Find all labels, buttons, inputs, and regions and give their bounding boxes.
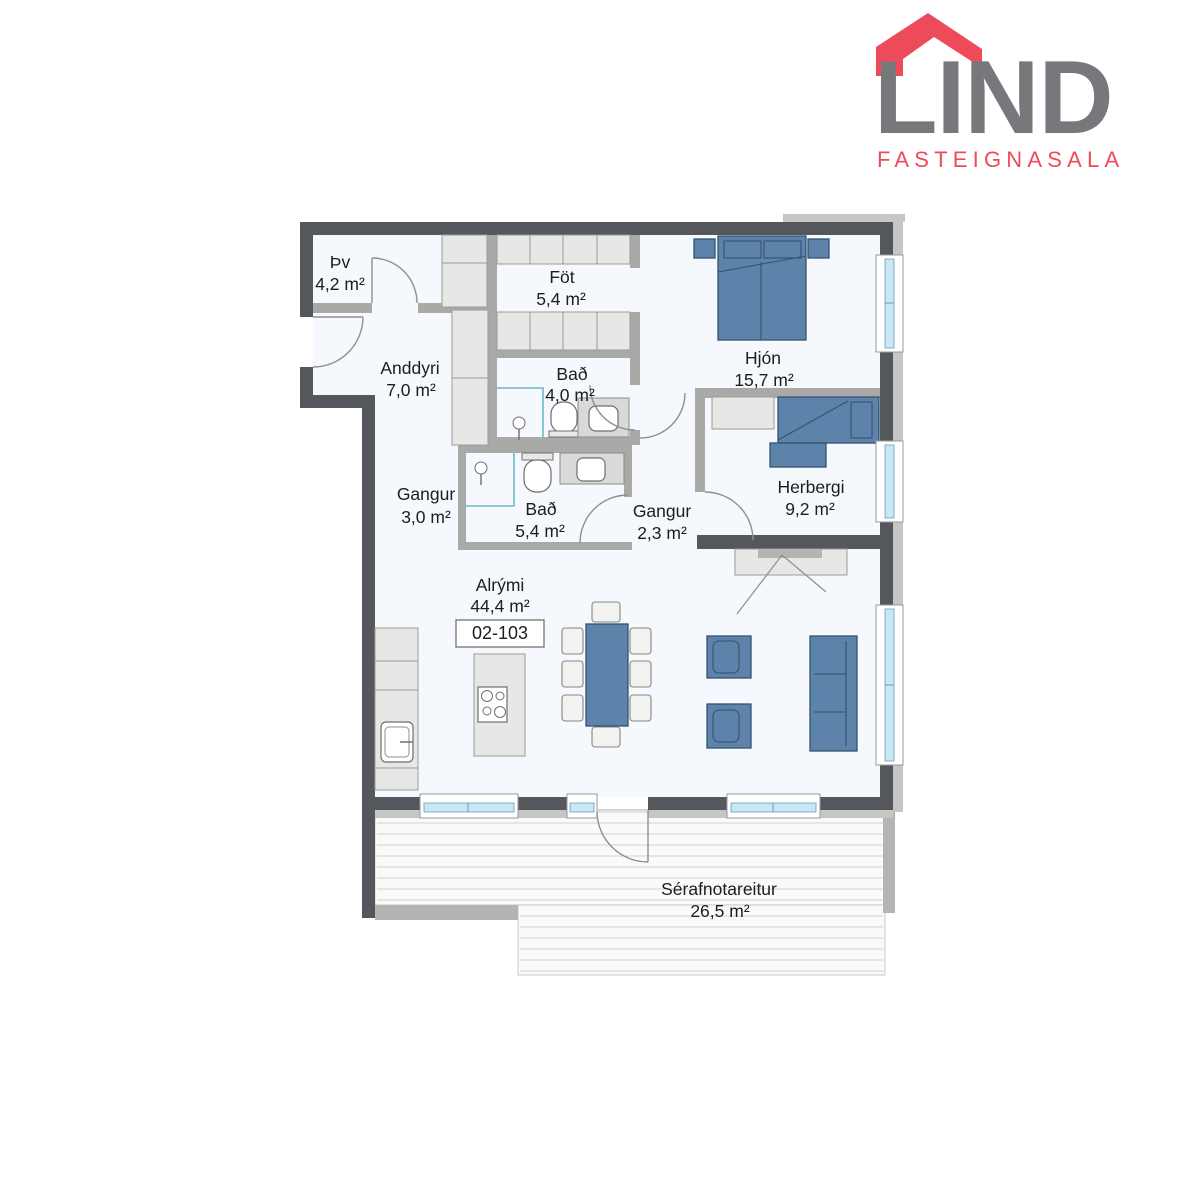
deck-edge-band-left bbox=[375, 905, 518, 920]
svg-text:Anddyri: Anddyri bbox=[380, 358, 439, 378]
svg-text:Alrými: Alrými bbox=[476, 575, 525, 595]
toilet-icon bbox=[551, 402, 577, 433]
room-label-alrymi: Alrými 44,4 m² bbox=[470, 575, 529, 616]
svg-text:7,0 m²: 7,0 m² bbox=[386, 380, 436, 400]
svg-text:4,2 m²: 4,2 m² bbox=[315, 274, 365, 294]
dining-table bbox=[586, 624, 628, 726]
basin-icon bbox=[577, 458, 605, 481]
svg-text:02-103: 02-103 bbox=[472, 623, 528, 643]
svg-text:15,7 m²: 15,7 m² bbox=[734, 370, 793, 390]
double-bed bbox=[718, 236, 806, 340]
svg-text:5,4 m²: 5,4 m² bbox=[536, 289, 586, 309]
svg-text:3,0 m²: 3,0 m² bbox=[401, 507, 451, 527]
svg-text:26,5 m²: 26,5 m² bbox=[690, 901, 749, 921]
deck-edge-band-right bbox=[883, 810, 895, 913]
entry-closet bbox=[442, 235, 487, 307]
nightstand-right bbox=[808, 239, 829, 258]
unit-number-badge: 02-103 bbox=[456, 620, 544, 647]
single-bed bbox=[778, 397, 879, 443]
svg-text:Bað: Bað bbox=[525, 499, 556, 519]
deck-terrace bbox=[375, 810, 895, 975]
brand-subtitle: FASTEIGNASALA bbox=[877, 147, 1124, 172]
basin-icon bbox=[589, 406, 618, 431]
floorplan-page: LIND FASTEIGNASALA bbox=[0, 0, 1200, 1200]
svg-text:Þv: Þv bbox=[330, 252, 351, 272]
brand-wordmark: LIND bbox=[874, 40, 1113, 156]
svg-text:Gangur: Gangur bbox=[633, 501, 692, 521]
kitchen-counter bbox=[375, 628, 418, 790]
armchair bbox=[707, 704, 751, 748]
floorplan-canvas: LIND FASTEIGNASALA bbox=[0, 0, 1200, 1200]
svg-text:Föt: Föt bbox=[549, 267, 574, 287]
sofa bbox=[810, 636, 857, 751]
svg-text:Gangur: Gangur bbox=[397, 484, 456, 504]
svg-text:5,4 m²: 5,4 m² bbox=[515, 521, 565, 541]
svg-text:Hjón: Hjón bbox=[745, 348, 781, 368]
lind-logo: LIND FASTEIGNASALA bbox=[874, 13, 1124, 172]
nightstand-left bbox=[694, 239, 715, 258]
svg-text:2,3 m²: 2,3 m² bbox=[637, 523, 687, 543]
shower-head-icon bbox=[475, 462, 487, 474]
svg-text:Sérafnotareitur: Sérafnotareitur bbox=[661, 879, 777, 899]
svg-text:44,4 m²: 44,4 m² bbox=[470, 596, 529, 616]
bed-bench bbox=[770, 443, 826, 467]
toilet-icon bbox=[524, 460, 551, 492]
svg-text:Herbergi: Herbergi bbox=[777, 477, 844, 497]
shower-head-icon bbox=[513, 417, 525, 429]
svg-text:4,0 m²: 4,0 m² bbox=[545, 385, 595, 405]
svg-text:Bað: Bað bbox=[556, 364, 587, 384]
armchair bbox=[707, 636, 751, 678]
svg-text:9,2 m²: 9,2 m² bbox=[785, 499, 835, 519]
herbergi-closet bbox=[712, 397, 774, 429]
